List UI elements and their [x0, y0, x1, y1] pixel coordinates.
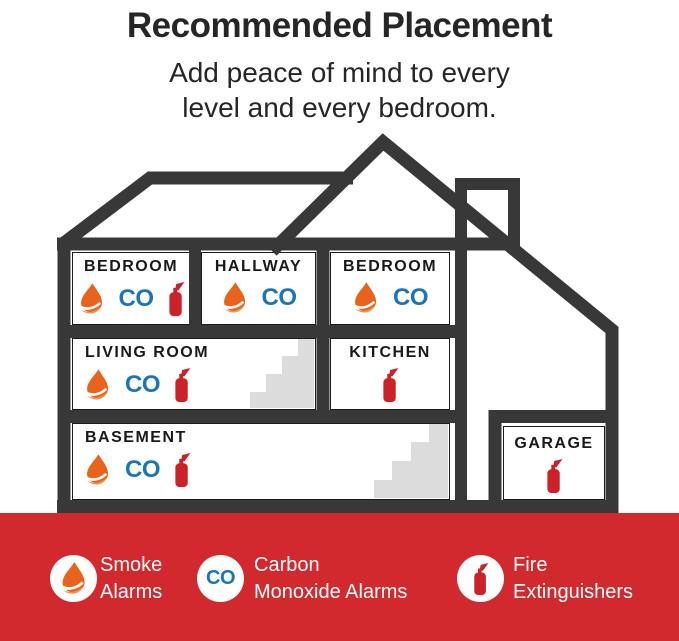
fire-extinguisher-icon: [173, 453, 191, 487]
legend-smoke-alarms: Smoke Alarms: [100, 552, 162, 606]
co-alarm-icon: CO: [262, 286, 297, 310]
legend-fire-extinguishers: Fire Extinguishers: [513, 552, 633, 606]
smoke-alarm-icon: [78, 283, 106, 315]
room-label: GARAGE: [504, 435, 604, 453]
co-alarm-icon: CO: [125, 373, 160, 397]
wall-living-kitchen: [317, 331, 330, 417]
fire-extinguisher-icon: [173, 368, 191, 402]
stairs-icon: [250, 339, 314, 408]
room-bedroom-1: BEDROOM CO: [72, 252, 190, 325]
fire-extinguisher-icon: [545, 459, 563, 493]
room-label: BEDROOM: [331, 258, 449, 276]
room-label: HALLWAY: [202, 258, 315, 276]
smoke-alarm-icon: [221, 282, 249, 314]
room-label: BEDROOM: [73, 258, 189, 276]
co-alarm-icon: CO: [119, 287, 154, 311]
room-label: KITCHEN: [331, 344, 449, 362]
room-icons: CO: [73, 282, 189, 316]
room-basement: BASEMENT CO: [72, 423, 450, 500]
room-kitchen: KITCHEN: [330, 338, 450, 410]
room-icons: CO: [331, 282, 449, 314]
co-icon: CO: [206, 567, 235, 590]
room-bedroom-2: BEDROOM CO: [330, 252, 450, 325]
legend-co-alarms: Carbon Monoxide Alarms: [254, 552, 407, 606]
co-alarm-icon: CO: [393, 286, 428, 310]
fire-extinguisher-icon: [381, 368, 399, 402]
flame-icon: [59, 562, 89, 595]
co-alarm-legend-icon: CO: [197, 555, 244, 602]
legend-bar: Smoke Alarms CO Carbon Monoxide Alarms F…: [0, 513, 679, 641]
room-hallway: HALLWAY CO: [201, 252, 316, 325]
recommended-placement-infographic: Recommended Placement Add peace of mind …: [0, 0, 679, 641]
extinguisher-icon: [472, 563, 489, 595]
smoke-alarm-icon: [84, 454, 112, 486]
smoke-alarm-icon: [352, 282, 380, 314]
stairs-icon: [374, 424, 448, 498]
smoke-alarm-icon: [84, 369, 112, 401]
fire-extinguisher-legend-icon: [457, 555, 504, 602]
room-living-room: LIVING ROOM CO: [72, 338, 316, 410]
fire-extinguisher-icon: [167, 282, 185, 316]
room-icons: CO: [202, 282, 315, 314]
room-garage: GARAGE: [503, 426, 605, 500]
co-alarm-icon: CO: [125, 458, 160, 482]
room-icons: [331, 368, 449, 402]
wall-bedroom1-hallway: [189, 244, 201, 332]
room-icons: [504, 459, 604, 493]
wall-hallway-bedroom2: [317, 244, 330, 332]
smoke-alarm-legend-icon: [50, 555, 97, 602]
